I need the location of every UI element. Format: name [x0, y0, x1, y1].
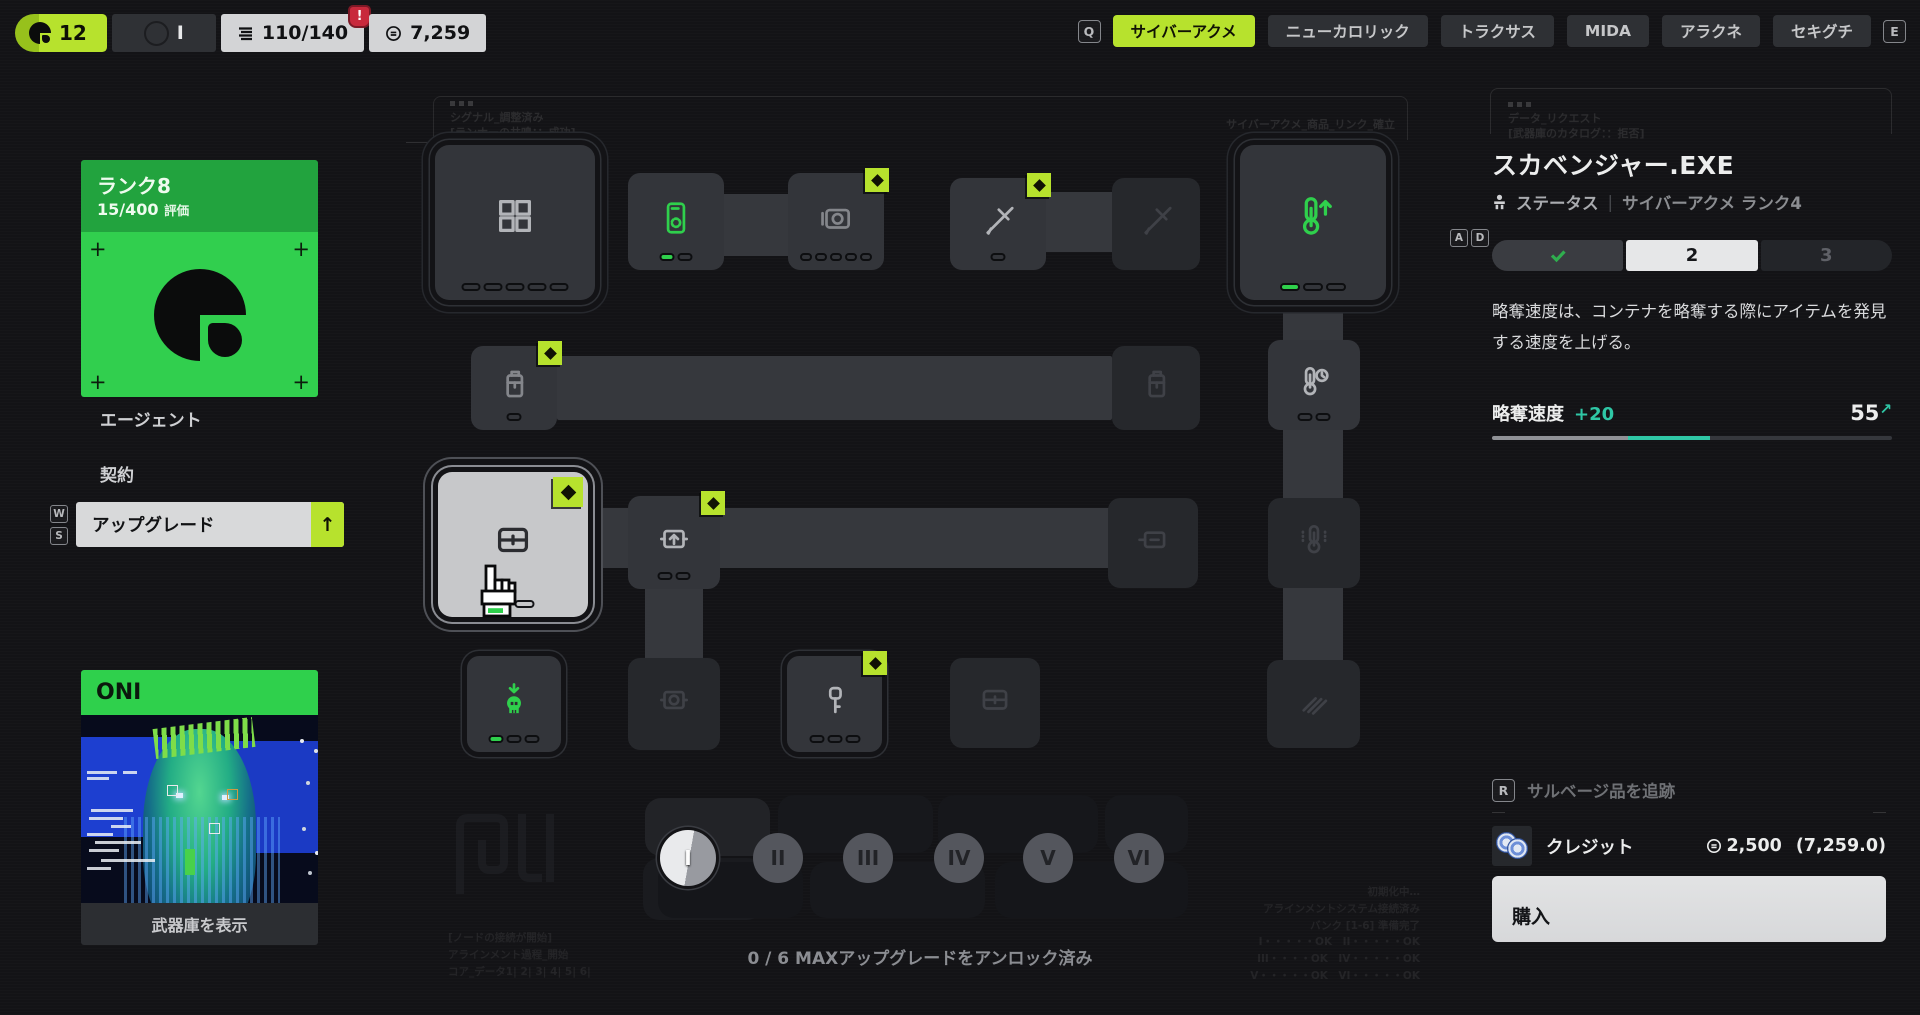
tier-V[interactable]: V [1023, 833, 1073, 883]
level-tab-3[interactable]: 3 [1761, 240, 1892, 271]
canister-icon [1137, 366, 1175, 404]
thermo-clock-icon [1295, 362, 1333, 400]
progress-pip [658, 572, 673, 580]
progress-pip [827, 735, 842, 743]
skull-down-icon [495, 681, 533, 719]
level-pips [1298, 413, 1331, 421]
vendor-tab-3[interactable]: トラクサス [1441, 15, 1554, 47]
vendor-tab-2[interactable]: ニューカロリック [1268, 15, 1428, 47]
upgrade-node-canister[interactable] [471, 346, 557, 430]
level-pips [658, 572, 691, 580]
progress-pip [462, 283, 481, 291]
list-icon [237, 25, 254, 42]
sidebar-item-contract[interactable]: 契約 [100, 461, 134, 486]
upgrade-node-canister-2[interactable] [1112, 346, 1200, 430]
detail-panel: データ_リクエスト [武器庫のカタログ：：拒否] スカベンジャー.EXE ステー… [1492, 96, 1892, 440]
sword-icon [979, 201, 1017, 239]
alignment-note-left: [ノードの接続が開始]アラインメント過程_開始コア_データ1| 2| 3| 4|… [448, 930, 591, 980]
coin-box-icon [655, 681, 693, 719]
sidebar-item-agent[interactable]: エージェント [100, 406, 202, 431]
level-tab-1-complete[interactable] [1492, 240, 1623, 271]
upgrade-node-thermo-dots[interactable] [1268, 498, 1360, 588]
box-up-icon [655, 520, 693, 558]
level-pips [660, 253, 693, 261]
link-note: サイバーアクメ_商品_リンク_確立 [1160, 118, 1395, 133]
corner-mark: + [89, 375, 107, 389]
progress-pip [815, 253, 827, 261]
upgrade-node-container-link[interactable] [1108, 498, 1198, 588]
faction-emblem: + + + + [81, 232, 318, 397]
wallet: 7,259 [369, 14, 486, 52]
key-hint-q: Q [1078, 20, 1101, 43]
tier-IV[interactable]: IV [934, 833, 984, 883]
progress-pip [1303, 283, 1323, 291]
upgrade-node-camera[interactable] [788, 173, 884, 270]
level-tab-2[interactable]: 2 [1626, 240, 1757, 271]
buy-button[interactable]: 購入 [1492, 876, 1886, 942]
node-connector [1283, 584, 1343, 664]
stat-delta: +20 [1574, 404, 1614, 425]
diagonal-icon [1295, 681, 1333, 719]
progress-pip [1280, 283, 1300, 291]
key-hint-s: S [50, 527, 68, 545]
agent-portrait [81, 715, 318, 903]
status-label: ステータス [1516, 190, 1599, 214]
container-icon [976, 680, 1014, 718]
rank-card[interactable]: ランク8 15/400 評価 + + + + [81, 160, 318, 397]
alert-badge: ! [348, 5, 371, 28]
tier-III[interactable]: III [843, 833, 893, 883]
agent-card[interactable]: ONI 武器庫を表示 [81, 670, 318, 945]
camera-icon [817, 199, 855, 237]
upgrade-available-badge [553, 477, 583, 507]
progress-pip [991, 253, 1006, 261]
node-connector [557, 356, 1112, 420]
key-hint-d: D [1471, 229, 1489, 247]
faint-note-line: V・・・・・OK VI・・・・・OK [1250, 968, 1420, 985]
slot-indicator: I [112, 14, 216, 52]
upgrade-node-loot-container[interactable] [438, 472, 588, 617]
progress-pip [676, 572, 691, 580]
upgrade-label: アップグレード [76, 512, 311, 537]
credits-coins-icon [1492, 826, 1532, 866]
faint-note-line: アラインメントシステム接続済み [1250, 901, 1420, 918]
stat-value: 55↗ [1850, 400, 1892, 425]
up-arrow-icon: ↑ [311, 502, 344, 547]
cost-row: クレジット 2,500 (7,259.0) [1492, 826, 1886, 866]
corner-mark: + [292, 242, 310, 256]
upgrade-description: 略奪速度は、コンテナを略奪する際にアイテムを発見する速度を上げる。 [1492, 297, 1892, 358]
upgrade-node-glide[interactable] [1267, 660, 1360, 748]
top-bar: 12 I 110/140 ! 7,259 Q サイバーアクメニューカロリックトラ… [0, 0, 1920, 62]
progress-pip [860, 253, 872, 261]
progress-pip [830, 253, 842, 261]
corner-mark: + [89, 242, 107, 256]
upgrade-node-container-2[interactable] [950, 658, 1040, 748]
stat-progress-bar [1492, 436, 1892, 440]
upgrade-node-drop-skull[interactable] [467, 656, 561, 752]
upgrade-available-badge [701, 491, 725, 515]
node-connector [645, 586, 703, 660]
data-request-note: データ_リクエスト [武器庫のカタログ：：拒否] [1508, 112, 1645, 142]
progress-pip [660, 253, 675, 261]
cost-balance: (7,259.0) [1796, 836, 1886, 856]
inventory-capacity: 110/140 ! [221, 14, 364, 52]
cost-label: クレジット [1546, 834, 1634, 859]
tier-I[interactable]: I [660, 830, 716, 886]
upgrade-node-melee[interactable] [950, 178, 1046, 270]
wallet-value: 7,259 [410, 22, 470, 44]
frame-dots [450, 101, 473, 106]
node-connector [718, 508, 1112, 568]
canister-icon [495, 366, 533, 404]
level-pips [462, 283, 569, 291]
tier-II[interactable]: II [753, 833, 803, 883]
progress-pip [845, 735, 860, 743]
upgrade-node-coin-box[interactable] [628, 658, 720, 750]
key-icon [816, 681, 854, 719]
key-hint-e: E [1883, 20, 1906, 43]
level-pips [800, 253, 872, 261]
track-salvage-label: サルベージ品を追跡 [1527, 778, 1675, 802]
progress-pip [484, 283, 503, 291]
vendor-tab-1[interactable]: サイバーアクメ [1113, 15, 1255, 47]
vendor-tabs: サイバーアクメニューカロリックトラクサスMIDAアラクネセキグチ [1113, 15, 1872, 47]
node-connector [1037, 192, 1122, 252]
vendor-tab-6[interactable]: セキグチ [1773, 15, 1871, 47]
level-pips [507, 413, 522, 421]
node-connector [585, 508, 632, 568]
vendor-tab-5[interactable]: アラクネ [1662, 15, 1760, 47]
faint-note-line: I・・・・・OK II・・・・・OK [1250, 934, 1420, 951]
container-left-icon [1134, 520, 1172, 558]
thermo-dots-icon [1295, 520, 1333, 558]
faint-note-line: コア_データ1| 2| 3| 4| 5| 6| [448, 964, 591, 981]
rank-title: ランク8 [97, 170, 302, 199]
faint-note-line: [ノードの接続が開始] [448, 930, 591, 947]
credits-icon [385, 25, 402, 42]
container-icon [490, 516, 536, 562]
upgrade-node-storage-grid[interactable] [435, 145, 595, 300]
rank-header: ランク8 15/400 評価 [81, 160, 318, 232]
stat-name: 略奪速度 [1492, 400, 1564, 426]
capacity-value: 110/140 [262, 22, 348, 44]
hand-cursor-icon [470, 563, 522, 625]
show-armory-button[interactable]: 武器庫を表示 [81, 903, 318, 945]
frame-dots [1508, 102, 1531, 107]
upgrade-screen: 12 I 110/140 ! 7,259 Q サイバーアクメニューカロリックトラ… [0, 0, 1920, 1015]
stat-bar-gain [1628, 436, 1710, 440]
agent-level-value: 12 [59, 21, 87, 45]
progress-pip [1298, 413, 1313, 421]
node-connector [1283, 426, 1343, 502]
progress-pip [507, 413, 522, 421]
faint-note-line: アラインメント過程_開始 [448, 947, 591, 964]
key-hint-r: R [1492, 779, 1515, 802]
progress-pip [550, 283, 569, 291]
key-hint-w: W [50, 505, 68, 523]
key-hint-a: A [1450, 229, 1468, 247]
upgrade-node-thermo-clock[interactable] [1268, 340, 1360, 430]
corner-mark: + [292, 375, 310, 389]
agent-level-badge: 12 [15, 14, 107, 52]
level-tabs: 2 3 [1492, 240, 1892, 271]
progress-pip [845, 253, 857, 261]
ws-key-hints: W S [50, 505, 68, 545]
slot-circle-icon [144, 21, 169, 46]
faint-note-line: III・・・・OK IV・・・・・OK [1250, 951, 1420, 968]
sidebar-item-upgrade[interactable]: アップグレード ↑ [76, 502, 344, 547]
tier-VI[interactable]: VI [1114, 833, 1164, 883]
level-pips [1280, 283, 1346, 291]
stat-bar-base [1492, 436, 1628, 440]
trend-up-icon: ↗ [1879, 400, 1892, 418]
upgrade-available-badge [863, 651, 887, 675]
level-pips [809, 735, 860, 743]
progress-pip [525, 735, 540, 743]
progress-pip [489, 735, 504, 743]
signal-note: シグナル_調整済み [ランナーの共鳴：：成功] [450, 111, 576, 141]
progress-pip [809, 735, 824, 743]
upgrade-node-stash-up[interactable] [628, 496, 720, 589]
check-icon [1546, 248, 1570, 264]
grid-icon [492, 193, 538, 239]
upgrade-available-badge [1027, 173, 1051, 197]
progress-pip [528, 283, 547, 291]
faction-logo-icon [29, 22, 51, 44]
credits-icon [1706, 838, 1722, 854]
level-pips [489, 735, 540, 743]
slot-label: I [177, 22, 184, 44]
progress-pip [678, 253, 693, 261]
phone-icon [657, 199, 695, 237]
status-icon [1492, 194, 1507, 210]
thermo-up-icon [1290, 193, 1336, 239]
decorative-maze-glyph [452, 812, 562, 894]
upgrade-node-key-unlock[interactable] [787, 656, 882, 752]
vendor-tab-4[interactable]: MIDA [1567, 15, 1649, 47]
divider: | [1608, 193, 1614, 212]
faction-logo-icon [154, 269, 246, 361]
progress-pip [1326, 283, 1346, 291]
cost-price: 2,500 [1706, 836, 1781, 856]
faint-note-line: 初期化中… [1250, 884, 1420, 901]
progress-pip [506, 283, 525, 291]
progress-pip [800, 253, 812, 261]
rank-progress: 15/400 評価 [97, 200, 302, 219]
ad-key-hints: A D [1450, 229, 1489, 247]
upgrade-node-melee-2[interactable] [1112, 178, 1200, 270]
upgrade-title: スカベンジャー.EXE [1492, 146, 1892, 182]
level-pips [991, 253, 1006, 261]
progress-pip [1316, 413, 1331, 421]
agent-name: ONI [81, 670, 318, 715]
track-salvage-action[interactable]: R サルベージ品を追跡 [1492, 778, 1675, 802]
stat-bar-rest [1710, 436, 1892, 440]
frame-tick [406, 142, 428, 143]
node-connector [1283, 296, 1343, 344]
upgrade-node-scanner-phone[interactable] [628, 173, 724, 270]
upgrade-available-badge [538, 341, 562, 365]
alignment-note-right: 初期化中…アラインメントシステム接続済みバンク [1-6] 準備完了I・・・・・… [1250, 884, 1420, 985]
upgrade-node-loot-speed[interactable] [1240, 145, 1386, 300]
upgrade-available-badge [865, 168, 889, 192]
vendor-rank: サイバーアクメ ランク4 [1622, 190, 1802, 214]
progress-pip [507, 735, 522, 743]
sword-icon [1137, 201, 1175, 239]
faint-note-line: バンク [1-6] 準備完了 [1250, 918, 1420, 935]
